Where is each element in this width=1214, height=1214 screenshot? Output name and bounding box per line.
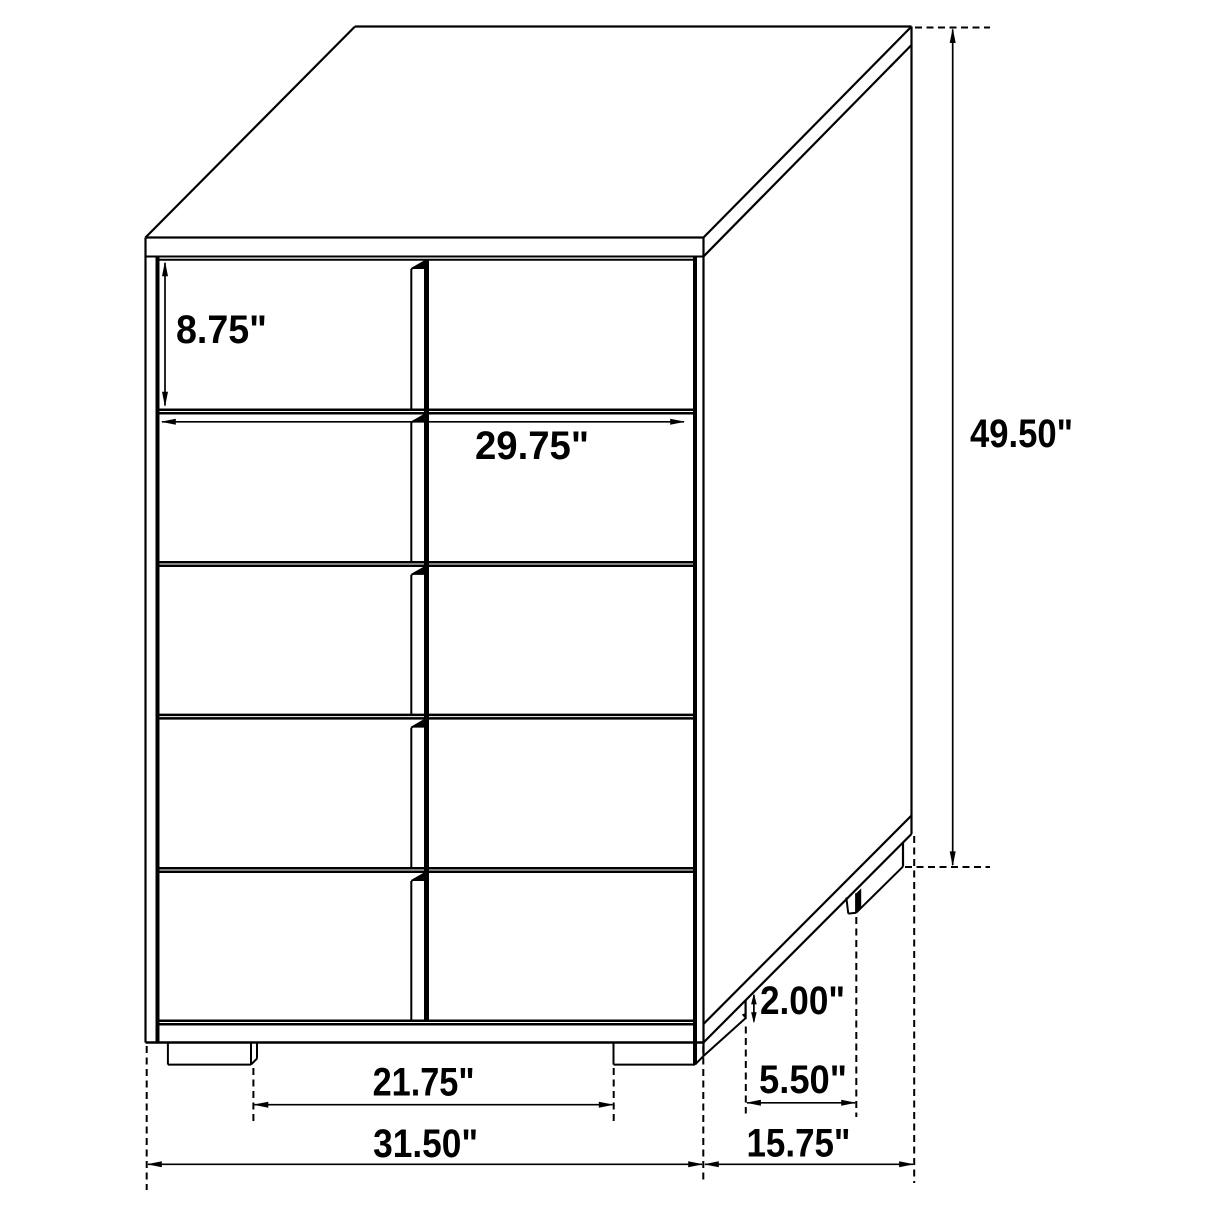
svg-text:31.50": 31.50"	[373, 1122, 478, 1166]
svg-text:29.75": 29.75"	[475, 424, 589, 468]
svg-text:15.75": 15.75"	[747, 1122, 851, 1166]
svg-text:21.75": 21.75"	[373, 1060, 475, 1104]
svg-text:5.50": 5.50"	[759, 1058, 847, 1102]
svg-text:8.75": 8.75"	[176, 308, 267, 352]
svg-text:2.00": 2.00"	[760, 979, 845, 1023]
svg-text:49.50": 49.50"	[970, 412, 1073, 456]
